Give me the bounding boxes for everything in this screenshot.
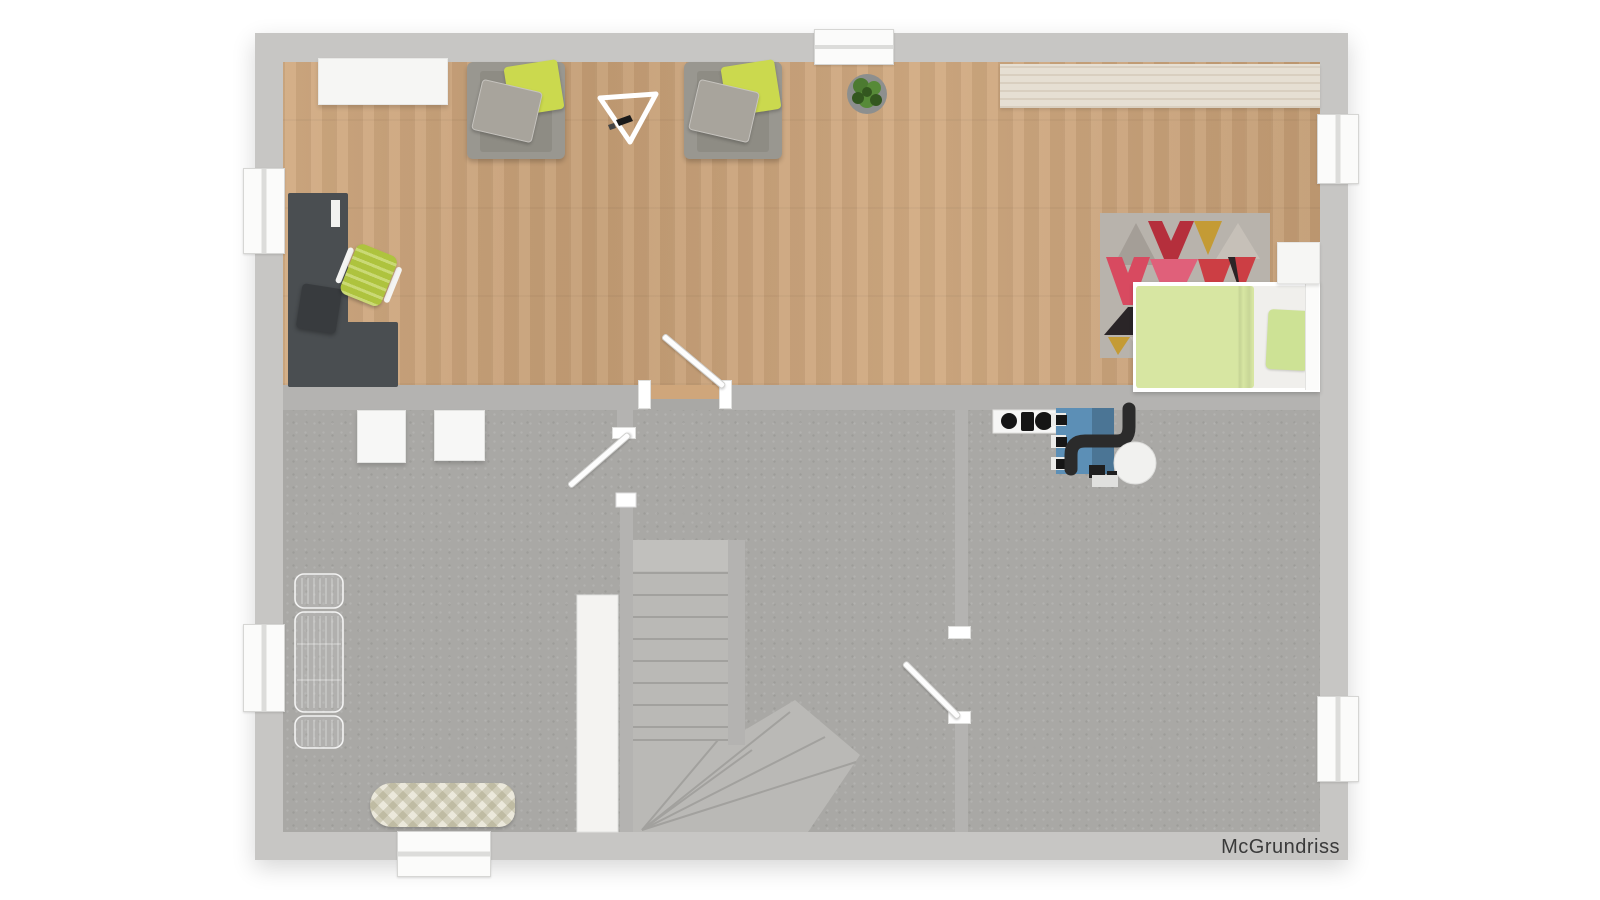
nightstand xyxy=(1277,242,1320,284)
ironing-board xyxy=(370,783,515,827)
outer-wall-left xyxy=(255,33,283,860)
drying-rack xyxy=(293,572,345,750)
bed-pillow xyxy=(1265,309,1310,371)
stair-wall-left xyxy=(620,505,633,832)
hotplate-ring xyxy=(1001,413,1017,429)
sideboard xyxy=(318,58,448,105)
stair-landing xyxy=(633,540,728,571)
easel-icon xyxy=(592,86,664,148)
potted-plant-icon xyxy=(845,72,889,116)
door-jamb xyxy=(948,626,971,639)
window-right-lower xyxy=(1317,696,1359,782)
washing-machine xyxy=(357,410,406,463)
floor-plan: McGrundriss xyxy=(0,0,1600,900)
watermark: McGrundriss xyxy=(1150,834,1340,860)
hotplate-ring xyxy=(1035,412,1053,430)
armchair xyxy=(684,62,782,159)
door-jamb xyxy=(638,380,651,409)
door-jamb xyxy=(616,493,636,507)
heating-system xyxy=(993,405,1168,490)
desk-paper xyxy=(331,200,340,227)
window-top xyxy=(814,29,894,65)
boiler-base xyxy=(1092,475,1118,487)
countertop xyxy=(1000,64,1320,108)
hotplate-block xyxy=(1021,412,1034,431)
doorway-threshold-wood xyxy=(648,385,724,399)
utility-wall-upper xyxy=(955,410,968,635)
divider-wall-left-segment xyxy=(283,385,648,410)
desk-return xyxy=(288,322,398,387)
dryer xyxy=(434,410,485,461)
closet xyxy=(577,595,618,832)
window-left-lower xyxy=(243,624,285,712)
stair-wall-right xyxy=(728,540,745,745)
doorway-threshold-gray xyxy=(648,399,724,410)
utility-wall-lower xyxy=(955,718,968,832)
window-right-upper xyxy=(1317,114,1359,184)
expansion-tank xyxy=(1114,442,1156,484)
bed-headboard xyxy=(1305,284,1319,390)
staircase xyxy=(560,478,870,832)
bed-duvet xyxy=(1136,286,1254,388)
window-bottom xyxy=(397,831,491,877)
window-left-upper xyxy=(243,168,285,254)
armchair xyxy=(467,62,565,159)
